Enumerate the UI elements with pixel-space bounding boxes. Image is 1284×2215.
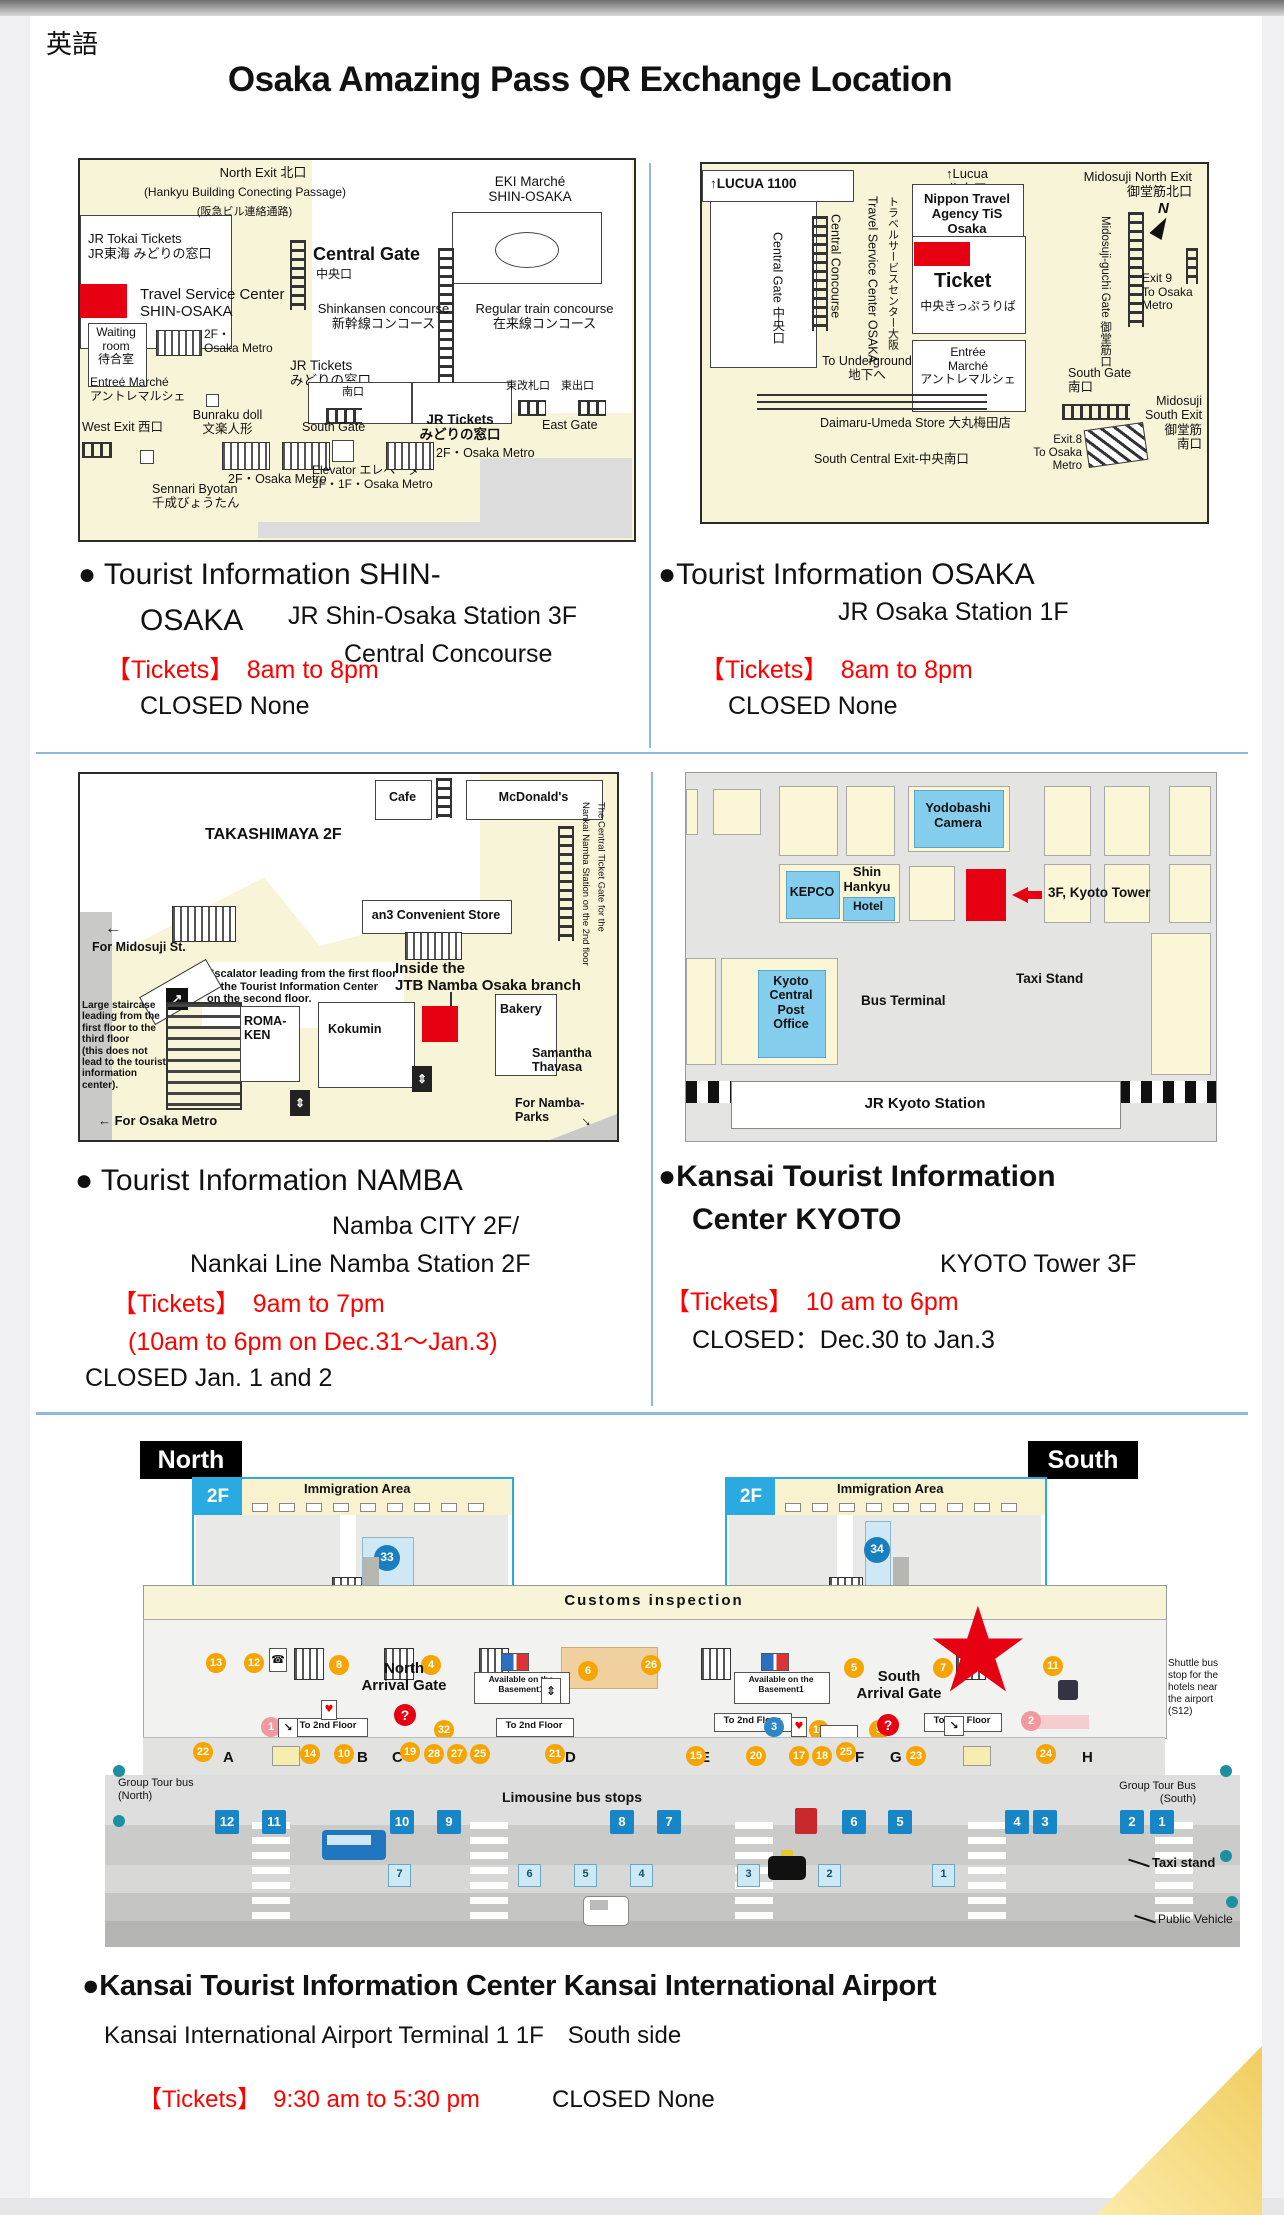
east-turnstile-icon (518, 400, 546, 416)
escalator-icon: ↘ (944, 1716, 964, 1736)
elevator-box (332, 440, 354, 462)
an3-label: an3 Convenient Store (362, 908, 510, 922)
aed-icon: ♥ (791, 1717, 807, 1737)
crosswalk (470, 1822, 508, 1922)
guide-marker: 26 (641, 1655, 661, 1675)
elevator-icon: ⇕ (290, 1090, 310, 1116)
floor-2f-label: 2F (194, 1486, 242, 1508)
bus-zone-letter: D (565, 1750, 576, 1765)
kokumin-box (318, 1002, 415, 1088)
building-block (1044, 786, 1091, 856)
to-2nd-floor-label: To 2nd Floor (290, 1721, 366, 1732)
page-corner-fold (1096, 2046, 1262, 2215)
exchange-location-marker (422, 1006, 458, 1042)
nankai-gate-label: The Central Ticket Gate for the Nankai N… (578, 802, 608, 1042)
guide-marker: 20 (746, 1746, 766, 1766)
osaka-closed: CLOSED None (728, 692, 898, 721)
stairs-icon (701, 1648, 731, 1680)
south-gate-label: South Gate 南口 (1068, 366, 1131, 395)
regular-concourse-label: Regular train concourse 在来線コンコース (462, 302, 627, 332)
guide-marker: 27 (447, 1744, 467, 1764)
language-tag: 英語 (46, 30, 98, 60)
elevator-icon: ⇕ (412, 1066, 432, 1092)
elevator-icon: ⇕ (541, 1678, 561, 1704)
west-turnstile-icon (82, 442, 112, 458)
exit8-label: Exit.8 To Osaka Metro (1002, 434, 1082, 473)
guide-marker: 25 (836, 1742, 856, 1762)
osaka-name: ●Tourist Information OSAKA (658, 558, 1035, 592)
platform-block (710, 194, 817, 368)
kix-name: ●Kansai Tourist Information Center Kansa… (82, 1970, 936, 2003)
guide-marker: 13 (206, 1653, 226, 1673)
metro-2f-east-label: 2F・Osaka Metro (436, 446, 535, 460)
stairs-icon (294, 1648, 324, 1680)
inside-jtb-label: Inside the JTB Namba Osaka branch (395, 960, 581, 994)
restroom-icon (501, 1653, 529, 1671)
sennari-byotan-label: Sennari Byotan 千成びょうたん (152, 482, 240, 511)
to-underground-label: To Underground 地下へ (807, 354, 927, 383)
east-gate-jp-label: 東改札口 東出口 (506, 380, 594, 393)
namba-location1: Namba CITY 2F/ (332, 1212, 519, 1241)
checker-strip (686, 1081, 731, 1103)
waiting-room-label: Waiting room 待合室 (90, 326, 142, 367)
guide-marker-blue: 3 (764, 1717, 784, 1737)
building-block (909, 866, 955, 921)
guide-marker: 28 (424, 1744, 444, 1764)
large-staircase-icon (166, 1002, 242, 1110)
bus-terminal-label: Bus Terminal (861, 993, 946, 1008)
kyoto-tickets: 【Tickets】 10 am to 6pm (665, 1288, 959, 1317)
taxi-stand-label: Taxi stand (1152, 1856, 1215, 1871)
taxi-icon (768, 1856, 806, 1880)
cafe-label: Cafe (375, 790, 430, 804)
phone-icon: ☎ (269, 1648, 287, 1672)
midosuji-north-exit-label: Midosuji North Exit 御堂筋北口 (1042, 170, 1192, 200)
entree-marche-label: Entrée Marché アントレマルシェ (914, 346, 1022, 387)
kix-closed: CLOSED None (552, 2086, 715, 2113)
romaken-label: ROMA- KEN (244, 1014, 286, 1043)
bus-stop-number: 1 (1150, 1810, 1174, 1834)
daimaru-label: Daimaru-Umeda Store 大丸梅田店 (820, 416, 1011, 430)
escalator-icon: ↘ (278, 1718, 298, 1738)
bus-stop-number: 7 (657, 1810, 681, 1834)
midosuji-south-exit-label: Midosuji South Exit 御堂筋 南口 (1132, 394, 1202, 451)
information-icon: ? (877, 1714, 899, 1736)
vertical-divider (649, 163, 651, 748)
car-windows (590, 1900, 608, 1910)
south-gate-turnstile-icon (1062, 404, 1130, 420)
restroom-icon (761, 1653, 789, 1671)
exchange-location-marker (914, 242, 970, 266)
sennari-marker (140, 450, 154, 464)
group-tour-south-label: Group Tour Bus (South) (1086, 1780, 1196, 1805)
kix-location: Kansai International Airport Terminal 1 … (104, 2022, 681, 2049)
bus-stop-number-2: 2 (818, 1864, 841, 1887)
guide-marker: 18 (812, 1746, 832, 1766)
south-gate-label: South Gate (302, 420, 365, 434)
basement1-note: Available on the Basement1 (734, 1675, 828, 1694)
track-lines (757, 394, 987, 412)
bus-stop-number: 10 (390, 1810, 414, 1834)
vertical-divider (651, 772, 653, 1406)
osaka-location: JR Osaka Station 1F (838, 598, 1069, 627)
guide-marker: 11 (1043, 1656, 1063, 1676)
for-osaka-metro-label: ← For Osaka Metro (98, 1114, 217, 1129)
flyer-page: 英語 Osaka Amazing Pass QR Exchange Locati… (0, 0, 1284, 2215)
exchange-location-marker (80, 284, 127, 318)
shading (480, 458, 632, 538)
metro-2f-label: 2F・ Osaka Metro (204, 328, 273, 355)
bus-stop-number-2: 7 (388, 1864, 411, 1887)
floor-2f-label: 2F (727, 1486, 775, 1508)
stairs-icon (436, 778, 452, 818)
guide-marker: 15 (686, 1746, 706, 1766)
kyoto-closed: CLOSED：Dec.30 to Jan.3 (692, 1326, 995, 1355)
counter-bar (1037, 1715, 1089, 1729)
bus-zone-letter: B (357, 1750, 368, 1765)
stairs-icon (222, 442, 270, 470)
guide-marker: 6 (578, 1661, 598, 1681)
bus-stop-number: 6 (842, 1810, 866, 1834)
guide-marker: 24 (1036, 1744, 1056, 1764)
bus-pole-icon (1226, 1896, 1238, 1908)
bus-stop-number-2: 6 (518, 1864, 541, 1887)
south-central-exit-label: South Central Exit-中央南口 (814, 452, 969, 466)
north-arrival-gate-label: North Arrival Gate (344, 1660, 464, 1694)
bus-stop-number-2: 4 (630, 1864, 653, 1887)
jr-tickets-south-label: JR Tickets みどりの窓口 (410, 412, 510, 443)
bus-stop-number: 12 (215, 1810, 239, 1834)
checker-strip (1119, 1081, 1216, 1103)
curb-strip: A B C D E F G H 22 14 10 19 28 27 25 21 … (143, 1737, 1165, 1776)
shinkansen-concourse-label: Shinkansen concourse 新幹線コンコース (306, 302, 461, 332)
guide-marker: 19 (400, 1742, 420, 1762)
central-gate-label: Central Gate 中央口 (770, 232, 784, 362)
kyoto-location: KYOTO Tower 3F (940, 1250, 1136, 1279)
takashimaya-label: TAKASHIMAYA 2F (205, 826, 342, 844)
hankyu-passage-label: (Hankyu Building Conecting Passage) (120, 186, 370, 200)
nippon-travel-label: Nippon Travel Agency TiS Osaka (914, 192, 1020, 236)
kyoto-name1: ●Kansai Tourist Information (658, 1160, 1056, 1194)
road-band (105, 1921, 1240, 1947)
kyoto-tower-arrow-bar (1026, 891, 1042, 899)
guide-marker: 10 (334, 1744, 354, 1764)
stairs-icon (405, 932, 462, 960)
building-block (686, 789, 698, 835)
bus-zone-letter: G (890, 1750, 902, 1765)
bus-pole-icon (1220, 1850, 1232, 1862)
bus-zone-letter: F (855, 1750, 864, 1765)
bus-stop-number: 3 (1033, 1810, 1057, 1834)
ticket-jp-label: 中央きっぷうりば (912, 300, 1024, 314)
stairs-icon (172, 906, 236, 942)
escalator-note: Escalator leading from the first floor t… (207, 968, 396, 1006)
bakery-label: Bakery (500, 1002, 542, 1016)
exit9-stairs-icon (1186, 248, 1198, 284)
page-bottom-edge (0, 2198, 1284, 2215)
horizontal-divider (36, 752, 1248, 754)
guide-marker: 25 (470, 1744, 490, 1764)
hotel-label: Hotel (843, 900, 893, 914)
shin-hankyu-label: Shin Hankyu (838, 865, 896, 895)
information-icon: ? (394, 1704, 416, 1726)
namba-tickets2: (10am to 6pm on Dec.31～Jan.3) (128, 1328, 498, 1357)
nankai-turnstile-icon (558, 826, 574, 941)
namba-tickets1: 【Tickets】 9am to 7pm (112, 1290, 385, 1319)
guide-marker: 23 (906, 1746, 926, 1766)
restroom-icon (272, 1746, 300, 1766)
eki-marche-oval (495, 232, 559, 268)
east-turnstile-icon (578, 400, 606, 416)
bus-pole-icon (113, 1765, 125, 1777)
south-gate-jp-label: 南口 (342, 386, 364, 399)
central-gate-turnstile-icon (290, 240, 306, 310)
bus-windows (327, 1835, 371, 1845)
bus-zone-letter: H (1082, 1750, 1093, 1765)
public-vehicle-label: Public Vehicle (1158, 1913, 1233, 1927)
namba-location2: Nankai Line Namba Station 2F (190, 1250, 530, 1279)
building-block (1104, 786, 1150, 856)
bus-stop-number: 4 (1005, 1810, 1029, 1834)
shuttle-bus-note: Shuttle bus stop for the hotels near the… (1168, 1658, 1244, 1718)
taxi-stand-label: Taxi Stand (1016, 971, 1083, 986)
west-exit-label: West Exit 西口 (82, 420, 163, 434)
post-office-label: Kyoto Central Post Office (758, 974, 824, 1031)
kepco-label: KEPCO (786, 885, 838, 899)
midosuji-guchi-gate-label: Midosuji-guchi Gate 御堂筋口 (1098, 216, 1111, 376)
bunraku-marker (206, 394, 219, 407)
shin-osaka-name: ● Tourist Information SHIN- (78, 558, 441, 592)
shin-osaka-name2: OSAKA (140, 604, 243, 638)
map-shin-osaka: North Exit 北口 (Hankyu Building Conecting… (78, 158, 636, 542)
north-tag-label: North (140, 1446, 242, 1475)
kokumin-label: Kokumin (328, 1022, 381, 1036)
east-gate-label: East Gate (542, 418, 598, 432)
map-osaka: ↑LUCUA 1100 ↑Lucua ルクア Midosuji North Ex… (700, 162, 1209, 524)
building-block (1151, 933, 1211, 1075)
guide-marker: 17 (789, 1746, 809, 1766)
central-gate-label: Central Gate (313, 244, 420, 265)
exchange-location-marker (966, 869, 1006, 921)
bus-stop-number-2: 1 (932, 1864, 955, 1887)
entree-marche-label: Entreé Marché アントレマルシェ (90, 376, 186, 403)
map-namba: TAKASHIMAYA 2F Cafe McDonald's The Centr… (78, 772, 619, 1142)
to-2nd-floor-label: To 2nd Floor (496, 1721, 572, 1732)
aed-icon: ♥ (321, 1700, 337, 1720)
map-kyoto: Yodobashi Camera KEPCO Shin Hankyu Hotel… (685, 772, 1217, 1142)
location-star-icon: ★ (925, 1592, 1031, 1710)
building-block (846, 786, 895, 856)
restroom-icon (963, 1746, 991, 1766)
jr-tokai-label: JR Tokai Tickets JR東海 みどりの窓口 (88, 232, 212, 262)
postbox-icon (795, 1808, 817, 1834)
shading (258, 522, 480, 538)
lucua1100-label: ↑LUCUA 1100 (710, 176, 797, 191)
guide-marker: 22 (193, 1742, 213, 1762)
compass-needle-icon (1149, 214, 1172, 240)
limousine-label: Limousine bus stops (502, 1790, 642, 1806)
bus-stop-number: 9 (437, 1810, 461, 1834)
crosswalk (252, 1822, 290, 1922)
guide-marker: 14 (300, 1744, 320, 1764)
stairs-icon (156, 330, 202, 356)
samantha-label: Samantha Thavasa (532, 1046, 592, 1075)
travel-service-center-label: Travel Service Center SHIN-OSAKA (140, 286, 285, 320)
jr-kyoto-station-label: JR Kyoto Station (731, 1095, 1119, 1112)
bus-pole-icon (1220, 1765, 1232, 1777)
crosswalk (1155, 1822, 1193, 1922)
midosuji-arrow-icon: ← (105, 920, 121, 938)
namba-parks-label: For Namba-Parks (515, 1096, 617, 1125)
osaka-tickets: 【Tickets】 8am to 8pm (700, 656, 973, 685)
bus-stop-number: 8 (610, 1810, 634, 1834)
shin-osaka-closed: CLOSED None (140, 692, 310, 721)
shop-icon (1058, 1680, 1078, 1700)
bus-stop-number: 11 (262, 1810, 286, 1834)
north-exit-label: North Exit 北口 (198, 166, 328, 181)
page-left-edge (0, 16, 30, 2215)
page-title: Osaka Amazing Pass QR Exchange Location (95, 60, 1085, 100)
horizontal-divider (36, 1412, 1248, 1415)
building-block (1169, 786, 1211, 856)
eki-marche-label: EKI Marché SHIN-OSAKA (465, 174, 595, 205)
bus-stop-number: 2 (1120, 1810, 1144, 1834)
bus-stop-number-2: 3 (737, 1864, 760, 1887)
central-gate-turnstile-icon (812, 216, 828, 331)
bunraku-doll-label: Bunraku doll 文楽人形 (185, 408, 270, 437)
immigration-area-label: Immigration Area (837, 1482, 943, 1497)
bus-pole-icon (113, 1815, 125, 1827)
guide-marker: 21 (545, 1744, 565, 1764)
south-tag-label: South (1028, 1446, 1138, 1475)
bus-zone-letter: A (223, 1750, 234, 1765)
kyoto-tower-label: 3F, Kyoto Tower (1048, 885, 1151, 900)
marker-34-label: 34 (864, 1543, 890, 1557)
central-concourse-label: Central Concourse (828, 214, 842, 364)
yodobashi-label: Yodobashi Camera (914, 801, 1002, 831)
page-top-edge (0, 0, 1284, 16)
building-block (686, 958, 716, 1065)
kyoto-name2: Center KYOTO (692, 1203, 902, 1237)
bus-stop-number: 5 (888, 1810, 912, 1834)
group-tour-north-label: Group Tour bus (North) (118, 1777, 194, 1802)
building-block (1169, 864, 1211, 923)
hankyu-passage-jp-label: (阪急ビル連絡通路) (172, 206, 317, 219)
bus-stop-number-2: 5 (574, 1864, 597, 1887)
building-block (713, 789, 761, 835)
crosswalk (968, 1822, 1006, 1922)
immigration-area-label: Immigration Area (304, 1482, 410, 1497)
ticket-label: Ticket (934, 270, 991, 293)
namba-name: ● Tourist Information NAMBA (75, 1164, 463, 1198)
namba-closed: CLOSED Jan. 1 and 2 (85, 1364, 332, 1393)
building-block (779, 786, 838, 856)
shin-osaka-location1: JR Shin-Osaka Station 3F (288, 602, 577, 631)
shin-osaka-tickets: 【Tickets】 8am to 8pm (106, 656, 379, 685)
central-gate-jp-label: 中央口 (316, 268, 352, 282)
guide-marker: 12 (244, 1653, 264, 1673)
staircase-note: Large staircase leading from the first f… (82, 1000, 166, 1091)
stairs-icon (386, 442, 434, 470)
kix-tickets: 【Tickets】 9:30 am to 5:30 pm (138, 2086, 480, 2113)
for-midosuji-label: For Midosuji St. (92, 940, 186, 954)
page-right-edge (1262, 16, 1284, 2215)
